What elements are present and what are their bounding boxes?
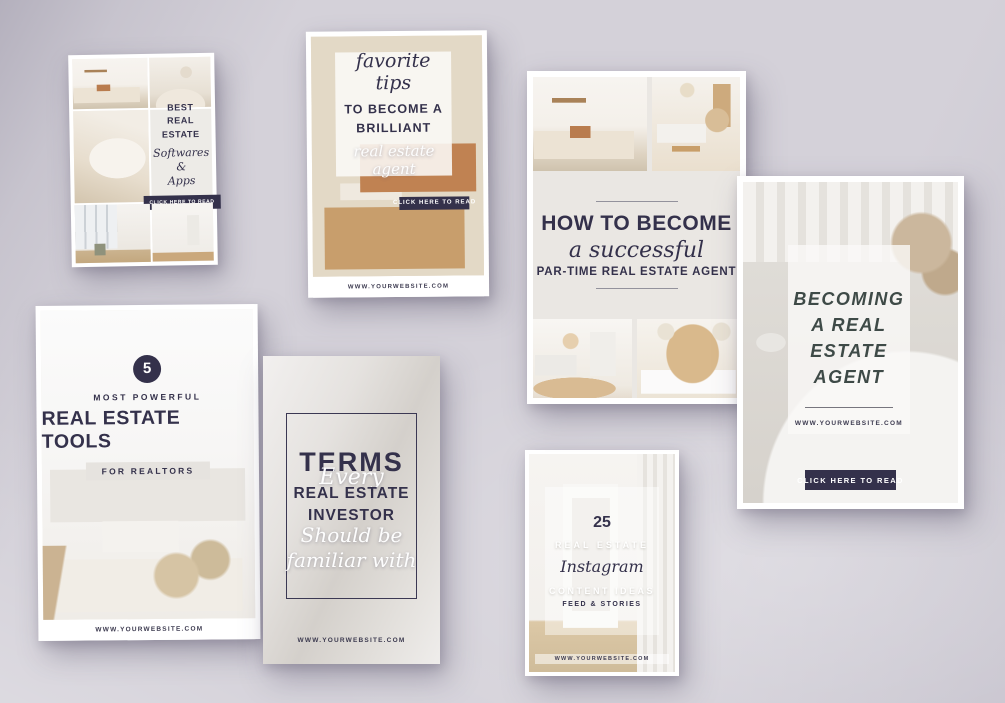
pin-favorite-tips: favorite tips TO BECOME A BRILLIANT real… [306,30,489,298]
website-url: WWW.YOURWEBSITE.COM [263,637,440,644]
headline-box: favorite tips TO BECOME A BRILLIANT real… [335,51,452,177]
caps-line-feed-stories: FEED & STORIES [562,601,641,608]
headline-block: TERMS Every REAL ESTATE INVESTOR Should … [263,356,440,664]
photo-living-room-rug: favorite tips TO BECOME A BRILLIANT real… [311,35,484,276]
website-url: WWW.YOURWEBSITE.COM [313,275,484,297]
script-heading: a successful [569,238,704,263]
subtitle-line: Softwares & [153,146,210,174]
website-url: WWW.YOURWEBSITE.COM [43,618,255,641]
title-line: REAL ESTATE [154,114,208,142]
photo-living-room [72,58,147,109]
script-subheading: real estate agent [340,142,449,179]
mockup-scene: BEST REAL ESTATE Softwares & Apps CLICK … [0,0,1005,703]
caps-subheading: PAR-TIME REAL ESTATE AGENT [537,266,737,278]
script-heading: Instagram [560,557,643,576]
caps-line: REAL ESTATE [293,483,409,505]
photo-doorway-curtain: 25 REAL ESTATE Instagram CONTENT IDEAS F… [529,454,675,672]
pin-instagram-ideas: 25 REAL ESTATE Instagram CONTENT IDEAS F… [525,450,679,676]
caps-line: BRILLIANT [344,118,443,138]
photo-sofa-shelf [533,77,647,171]
card-subtitle: Softwares & Apps [153,146,210,188]
caps-line-real-estate: REAL ESTATE [555,540,649,550]
click-here-to-read-button[interactable]: CLICK HERE TO READ [805,470,895,490]
photo-window-plant [75,204,151,264]
kicker-text: MOST POWERFUL [93,391,201,402]
card-title: BECOMING A REAL ESTATE AGENT [788,286,909,390]
headline-block: HOW TO BECOME a successful PAR-TIME REAL… [533,171,740,319]
photo-hallway [151,203,213,262]
number-heading: 25 [593,514,611,532]
website-url: WWW.YOURWEBSITE.COM [535,654,669,664]
photo-sofa-closeup [73,110,149,203]
pin-investor-terms: TERMS Every REAL ESTATE INVESTOR Should … [263,356,440,664]
divider [596,288,678,289]
photo-hanging-chair [652,77,740,171]
title-line: BECOMING A REAL [788,286,909,338]
photo-white-room [533,319,632,398]
pin-softwares-apps: BEST REAL ESTATE Softwares & Apps CLICK … [68,53,218,268]
divider [805,407,892,408]
card-title: BEST REAL ESTATE [153,100,207,141]
script-phrase: Should be familiar with [287,523,417,573]
photo-bedroom [637,319,740,398]
script-line: Should be [287,523,417,548]
script-heading: favorite tips [339,49,448,94]
text-panel: BEST REAL ESTATE Softwares & Apps CLICK … [150,109,213,202]
website-url: WWW.YOURWEBSITE.COM [795,420,903,427]
photo-sectional-sofa: 5 MOST POWERFUL REAL ESTATE TOOLS FOR RE… [41,309,256,620]
tag-label: FOR REALTORS [86,461,211,480]
headline-box: 25 REAL ESTATE Instagram CONTENT IDEAS F… [545,487,659,635]
headline-box: BECOMING A REAL ESTATE AGENT WWW.YOURWEB… [788,245,909,434]
pin-how-to-become: HOW TO BECOME a successful PAR-TIME REAL… [527,71,746,404]
caps-line-content-ideas: CONTENT IDEAS [549,586,655,596]
caps-line: TO BECOME A [344,99,443,119]
card-title: REAL ESTATE TOOLS [41,406,253,454]
title-line: BEST [153,100,207,114]
number-badge: 5 [133,354,161,382]
title-line: ESTATE AGENT [788,338,909,390]
divider [596,201,678,202]
caps-heading: TO BECOME A BRILLIANT [344,99,443,137]
subtitle-line: Apps [153,173,209,188]
script-line: familiar with [287,548,417,573]
pin-becoming-agent: BECOMING A REAL ESTATE AGENT WWW.YOURWEB… [737,176,964,509]
pin-real-estate-tools: 5 MOST POWERFUL REAL ESTATE TOOLS FOR RE… [36,304,261,641]
caps-subheading: REAL ESTATE INVESTOR [293,483,409,528]
click-here-to-read-button[interactable]: CLICK HERE TO READ [399,196,469,210]
photo-white-sofa: BECOMING A REAL ESTATE AGENT WWW.YOURWEB… [743,182,958,503]
caps-heading: HOW TO BECOME [541,212,731,236]
